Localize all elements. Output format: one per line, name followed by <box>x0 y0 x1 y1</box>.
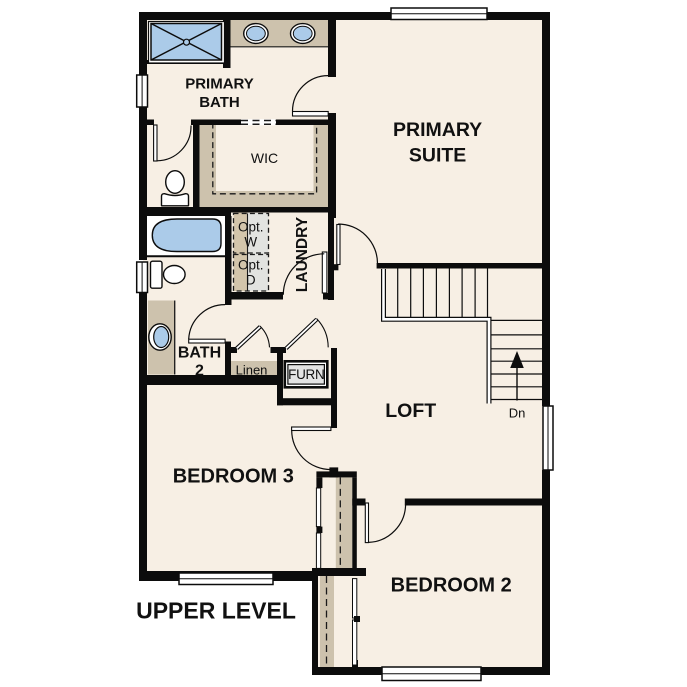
svg-text:Linen: Linen <box>236 363 268 378</box>
svg-text:FURN: FURN <box>288 367 324 382</box>
svg-text:BATH: BATH <box>199 94 240 111</box>
svg-text:2: 2 <box>195 363 204 380</box>
svg-text:LAUNDRY: LAUNDRY <box>294 216 311 292</box>
svg-text:PRIMARY: PRIMARY <box>393 119 482 141</box>
svg-text:LOFT: LOFT <box>385 400 436 422</box>
svg-text:PRIMARY: PRIMARY <box>185 76 254 93</box>
svg-text:SUITE: SUITE <box>409 144 466 166</box>
svg-text:BATH: BATH <box>178 345 221 362</box>
svg-text:Opt.: Opt. <box>238 257 264 272</box>
svg-text:BEDROOM 3: BEDROOM 3 <box>173 466 294 488</box>
svg-text:D: D <box>246 272 256 287</box>
svg-text:BEDROOM 2: BEDROOM 2 <box>391 575 512 597</box>
svg-text:UPPER LEVEL: UPPER LEVEL <box>136 598 296 624</box>
svg-text:W: W <box>244 235 257 250</box>
svg-text:Opt.: Opt. <box>238 220 264 235</box>
svg-text:WIC: WIC <box>251 150 278 166</box>
svg-text:Dn: Dn <box>509 406 526 421</box>
